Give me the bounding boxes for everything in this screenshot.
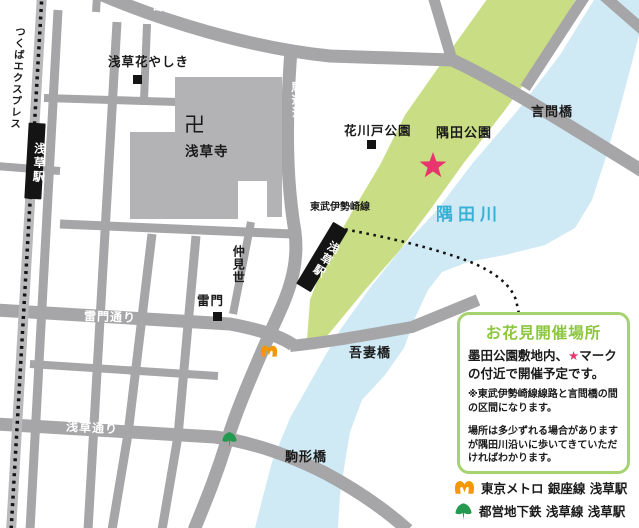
label-kaminarimon: 雷門 bbox=[197, 294, 224, 308]
road-top-branch bbox=[433, 0, 452, 60]
label-manji-temple-symbol: 卍 bbox=[184, 114, 206, 137]
label-komagata-bridge: 駒形橋 bbox=[285, 451, 327, 465]
hanayashiki-marker bbox=[133, 75, 142, 84]
label-sumida-park: 隅田公園 bbox=[436, 127, 492, 141]
hanami-info-title: お花見開催場所 bbox=[468, 321, 619, 343]
hanami-info-note2: 場所は多少ずれる場合がありますが隅田川沿いに歩いてきていただければわかります。 bbox=[468, 425, 619, 466]
station-legend: 東京メトロ 銀座線 浅草駅 都営地下鉄 浅草線 浅草駅 bbox=[454, 477, 627, 523]
legend-row-toei-subway: 都営地下鉄 浅草線 浅草駅 bbox=[454, 500, 627, 521]
kaminarimon-marker bbox=[213, 312, 222, 321]
label-nakamise: 仲見世 bbox=[231, 245, 244, 284]
road-grid-v2-stub bbox=[96, 0, 97, 12]
asakusa-hanami-map: 言問通り つくばエクスプレス 浅草駅 浅草花やしき 馬道通り 卍 浅草寺 花川戸… bbox=[0, 0, 639, 528]
label-kaminarimon-dori: 雷門通り bbox=[84, 310, 136, 325]
info-body-text-1: 墨田公園敷地内、 bbox=[468, 348, 568, 363]
legend-label-toei-subway: 都営地下鉄 浅草線 浅草駅 bbox=[479, 501, 625, 520]
label-tobu-isesaki-line: 東武伊勢崎線 bbox=[310, 202, 370, 213]
label-sumida-river: 隅田川 bbox=[436, 206, 502, 225]
road-grid-v4 bbox=[112, 234, 152, 528]
road-grid-h3 bbox=[60, 224, 292, 234]
label-hanayashiki: 浅草花やしき bbox=[108, 55, 189, 69]
legend-row-tokyo-metro: 東京メトロ 銀座線 浅草駅 bbox=[454, 477, 627, 498]
tokyo-metro-icon bbox=[454, 479, 475, 496]
road-grid-h4 bbox=[30, 364, 218, 376]
info-star-glyph: ★ bbox=[568, 348, 579, 363]
label-hanakawado-park: 花川戸公園 bbox=[344, 124, 412, 138]
legend-label-tokyo-metro: 東京メトロ 銀座線 浅草駅 bbox=[481, 478, 627, 497]
toei-subway-icon bbox=[454, 501, 473, 521]
label-tx-asakusa-station: 浅草駅 bbox=[20, 127, 50, 198]
road-grid-h1 bbox=[44, 98, 178, 102]
label-asakusa-dori: 浅草通り bbox=[66, 421, 119, 437]
label-sensoji: 浅草寺 bbox=[185, 145, 229, 160]
hanakawado-park-marker bbox=[367, 140, 376, 149]
label-umamichi-dori: 馬道通り bbox=[290, 81, 305, 132]
hanami-info-body: 墨田公園敷地内、★マークの付近で開催予定です。 bbox=[468, 347, 619, 383]
hanami-info-note1: ※東武伊勢崎線線路と言問橋の間の区間になります。 bbox=[468, 388, 619, 415]
hanami-info-box: お花見開催場所 墨田公園敷地内、★マークの付近で開催予定です。 ※東武伊勢崎線線… bbox=[457, 312, 630, 474]
label-azuma-bridge: 吾妻橋 bbox=[349, 347, 391, 361]
label-kototoi-bridge: 言問橋 bbox=[531, 106, 573, 120]
